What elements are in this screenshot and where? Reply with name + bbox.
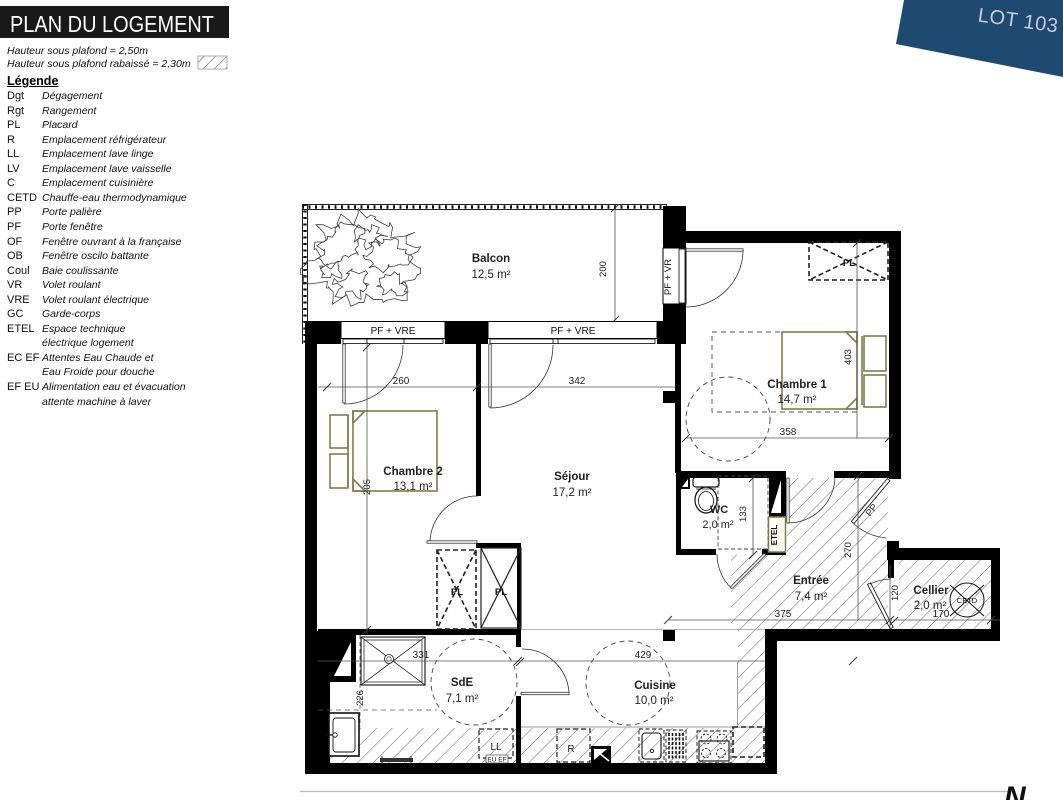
svg-text:SdE: SdE — [451, 677, 474, 689]
svg-text:EU EF: EU EF — [487, 757, 506, 764]
svg-text:13,1 m²: 13,1 m² — [394, 481, 433, 493]
svg-text:10,0 m²: 10,0 m² — [635, 695, 674, 707]
svg-text:205: 205 — [362, 479, 373, 495]
svg-text:Chambre 1: Chambre 1 — [767, 379, 827, 391]
svg-text:WC: WC — [710, 504, 728, 516]
svg-text:14,7 m²: 14,7 m² — [778, 394, 817, 406]
svg-text:Cellier: Cellier — [913, 585, 949, 597]
svg-text:270: 270 — [843, 542, 854, 558]
svg-text:375: 375 — [775, 609, 792, 620]
svg-text:17,2 m²: 17,2 m² — [553, 487, 592, 499]
svg-text:Séjour: Séjour — [554, 471, 590, 483]
svg-text:331: 331 — [413, 650, 430, 661]
svg-text:342: 342 — [569, 376, 586, 387]
svg-text:PF + VR: PF + VR — [663, 259, 674, 295]
svg-text:170: 170 — [933, 609, 950, 620]
svg-text:PF + VRE: PF + VRE — [551, 326, 596, 337]
svg-text:12,5 m²: 12,5 m² — [472, 269, 511, 281]
svg-text:260: 260 — [393, 376, 410, 387]
svg-text:7,4 m²: 7,4 m² — [795, 591, 828, 603]
svg-text:120: 120 — [890, 585, 901, 601]
svg-text:133: 133 — [738, 506, 749, 522]
svg-text:PL: PL — [843, 258, 855, 269]
svg-text:2,0 m²: 2,0 m² — [702, 519, 734, 531]
svg-text:Entrée: Entrée — [793, 575, 829, 587]
svg-text:PL: PL — [451, 587, 463, 598]
svg-text:PL: PL — [495, 587, 507, 598]
svg-text:LL: LL — [490, 742, 502, 753]
svg-text:Chambre 2: Chambre 2 — [383, 466, 442, 478]
svg-text:429: 429 — [635, 650, 652, 661]
svg-text:R: R — [567, 744, 574, 755]
svg-text:403: 403 — [843, 349, 854, 365]
svg-text:Balcon: Balcon — [472, 253, 510, 265]
svg-text:200: 200 — [598, 261, 609, 277]
svg-text:ETEL: ETEL — [770, 525, 779, 546]
svg-text:PF + VRE: PF + VRE — [371, 326, 416, 337]
svg-text:Cuisine: Cuisine — [634, 680, 676, 692]
svg-text:226: 226 — [355, 690, 366, 706]
svg-text:CETD: CETD — [957, 596, 978, 605]
svg-text:358: 358 — [780, 427, 797, 438]
svg-text:7,1 m²: 7,1 m² — [446, 693, 479, 705]
svg-text:N: N — [1004, 781, 1027, 800]
